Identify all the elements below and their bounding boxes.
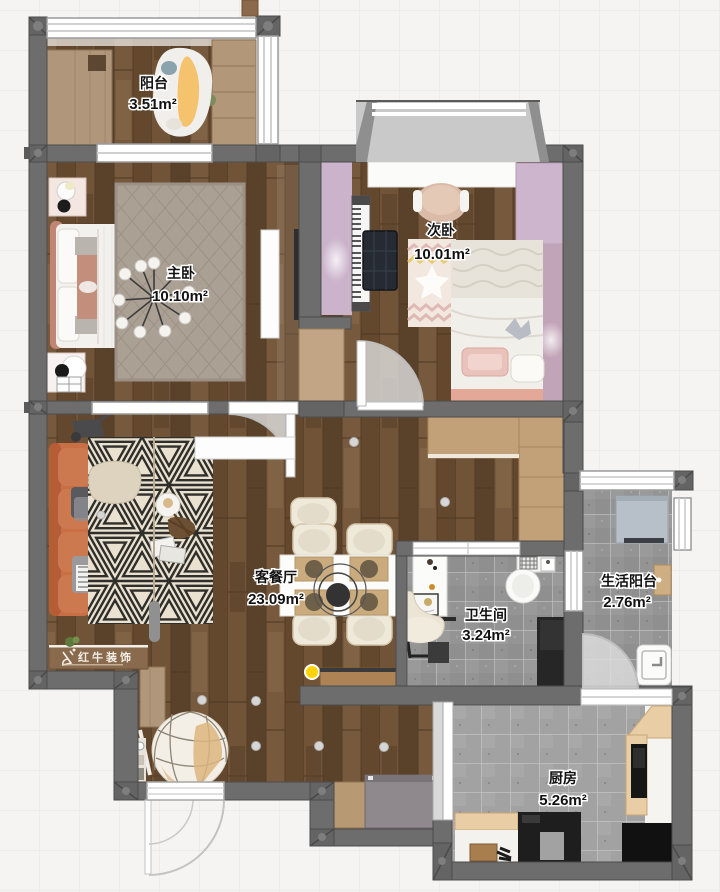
- svg-text:生活阳台: 生活阳台: [601, 573, 657, 589]
- svg-text:2.76m²: 2.76m²: [603, 594, 651, 611]
- svg-text:5.26m²: 5.26m²: [539, 792, 587, 809]
- svg-text:次卧: 次卧: [427, 222, 455, 238]
- svg-text:阳台: 阳台: [140, 75, 168, 91]
- svg-text:3.51m²: 3.51m²: [129, 96, 177, 113]
- svg-text:3.24m²: 3.24m²: [462, 627, 510, 644]
- svg-text:红牛装饰: 红牛装饰: [78, 650, 134, 664]
- svg-text:10.01m²: 10.01m²: [414, 246, 470, 263]
- svg-text:10.10m²: 10.10m²: [152, 288, 208, 305]
- svg-text:厨房: 厨房: [549, 770, 577, 786]
- svg-text:主卧: 主卧: [167, 265, 195, 281]
- svg-text:卫生间: 卫生间: [465, 607, 507, 623]
- svg-text:23.09m²: 23.09m²: [248, 591, 304, 608]
- svg-text:客餐厅: 客餐厅: [254, 569, 297, 585]
